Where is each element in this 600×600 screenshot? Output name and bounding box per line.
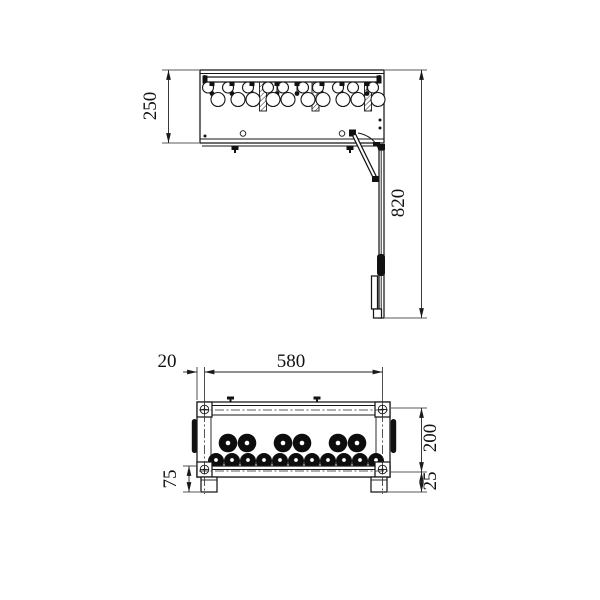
front-view (192, 397, 396, 495)
rivet (379, 119, 382, 122)
lamp-rail (206, 77, 378, 82)
rivet (379, 127, 382, 130)
vent-hole (339, 131, 345, 137)
dim-label-250: 250 (140, 92, 161, 121)
dim-label-75: 75 (160, 470, 181, 489)
lamp-circles-upper-row (203, 82, 379, 93)
dimension-20-580: 20 580 (158, 351, 383, 400)
door-latch (377, 254, 385, 276)
dim-label-820: 820 (388, 189, 409, 218)
dimension-250: 250 (140, 70, 199, 143)
rail-end-cap (377, 76, 382, 84)
right-side-tab (391, 419, 397, 453)
dim-label-25: 25 (420, 472, 441, 491)
door-handle (372, 276, 378, 309)
strut-foot (372, 176, 379, 182)
drawing-sheet: 250 820 (0, 0, 600, 600)
dimension-820: 820 (385, 70, 427, 318)
bottom-band (197, 466, 390, 477)
dim-label-580: 580 (277, 351, 306, 372)
door-foot (374, 309, 382, 318)
dimension-75: 75 (160, 466, 200, 492)
door-hinge-top (378, 144, 385, 150)
cad-drawing-canvas: 250 820 (0, 0, 600, 600)
side-section-view (200, 70, 385, 318)
dim-label-200: 200 (420, 424, 441, 453)
feet (201, 477, 387, 492)
rivet (204, 135, 207, 138)
bottom-bolts (232, 147, 354, 154)
dim-label-20: 20 (158, 351, 177, 372)
vent-hole (240, 131, 246, 137)
